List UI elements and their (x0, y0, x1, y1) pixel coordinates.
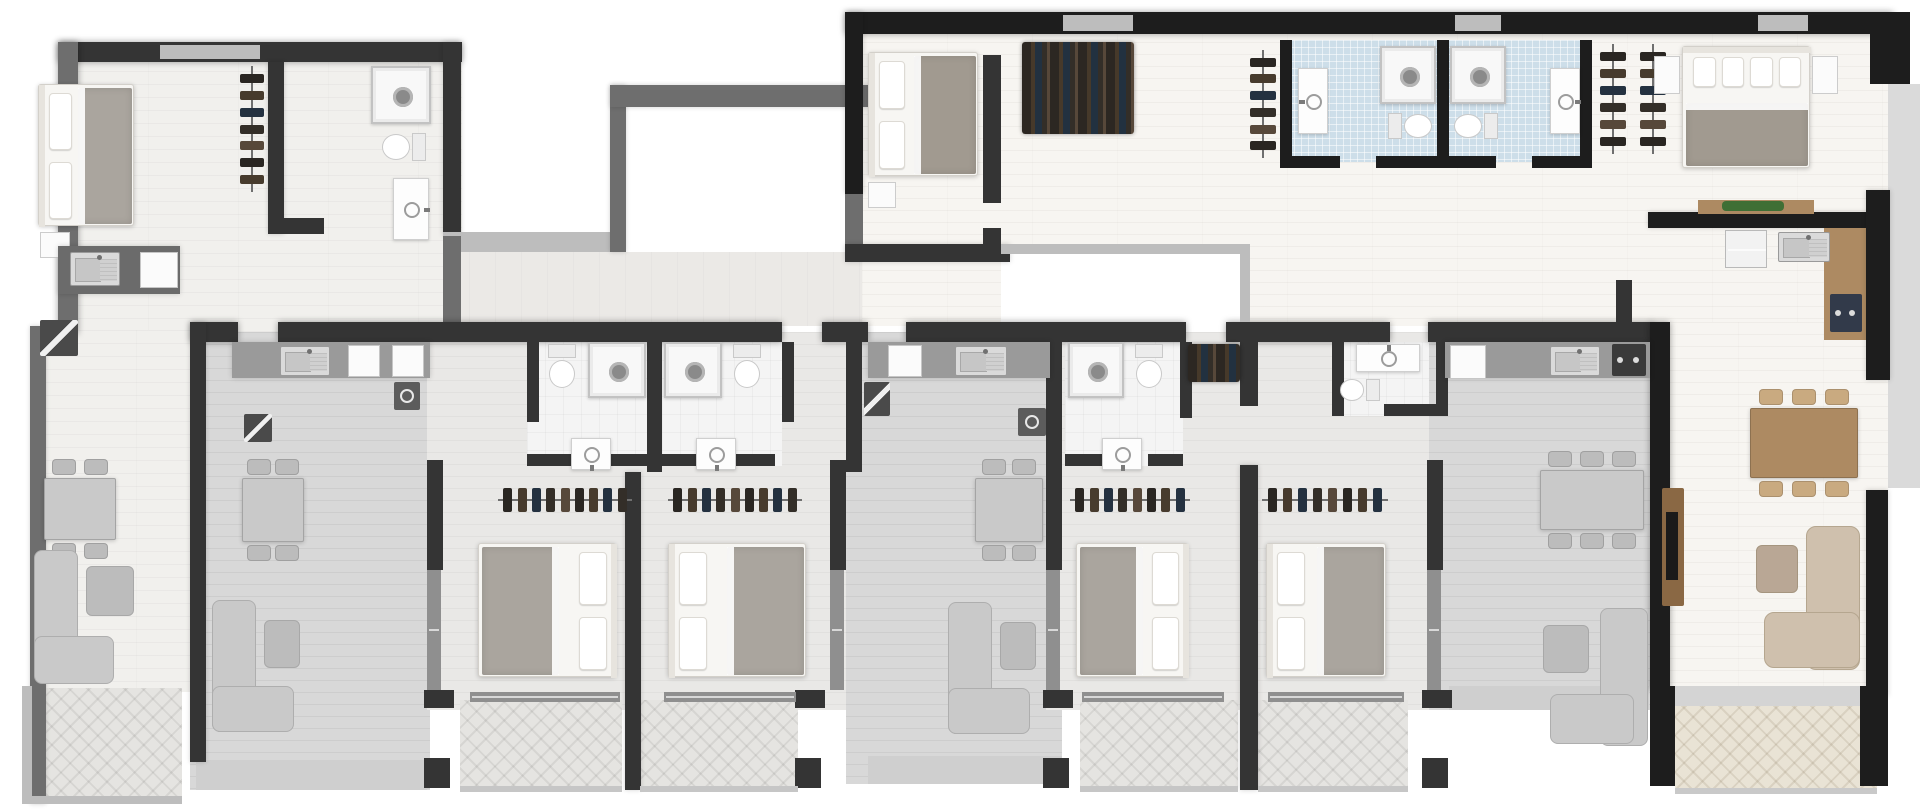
toilet-bowl (1136, 360, 1162, 388)
hanger-icon (518, 488, 527, 512)
wardrobe-bayC2 (1070, 486, 1190, 514)
floor-corridor (443, 252, 863, 326)
wall-unitE-corner-br (1860, 686, 1888, 786)
toilet-tank (1388, 113, 1402, 139)
vanity-bathD (1356, 344, 1420, 372)
wall-unitE-top (845, 12, 1893, 34)
table-unitE (1750, 408, 1858, 478)
fridge-unitE (1725, 230, 1767, 268)
pillow (1277, 617, 1305, 670)
toilet-unit1 (378, 130, 426, 164)
tap-icon (1387, 345, 1391, 351)
headboard (869, 53, 875, 177)
bed-bayC (668, 543, 806, 677)
wall-unit1-bath-right (443, 42, 461, 236)
toilet-bowl (549, 360, 575, 388)
toilet-bowl (1404, 114, 1432, 138)
chair (1825, 389, 1849, 405)
table-top (975, 478, 1043, 542)
wall-bathsE-right (1580, 40, 1592, 162)
wall-mid-seg2 (278, 322, 782, 342)
pillow (1722, 57, 1745, 87)
wall-sliderD-upper (1427, 460, 1443, 570)
shower-bathE2 (1450, 46, 1506, 104)
pillow (1779, 57, 1802, 87)
hanger-icon (240, 74, 264, 83)
floor-balconyB (460, 700, 622, 788)
chair (1612, 533, 1636, 549)
table-unitD (1540, 470, 1644, 530)
wall-bedBC-divider (625, 472, 641, 790)
wardrobe-unit1 (238, 66, 266, 192)
wall-unit1-divider (268, 62, 284, 234)
faucet-icon (1806, 235, 1811, 240)
fridge-unitB (244, 414, 272, 442)
hanger-icon (589, 488, 598, 512)
hanger-icon (759, 488, 768, 512)
hanger-icon (1313, 488, 1322, 512)
chair (982, 545, 1006, 561)
toilet-tank (548, 344, 575, 358)
hanger-icon (240, 158, 264, 167)
pillow (1152, 552, 1179, 605)
sink-basin-icon (1381, 351, 1397, 367)
pillow (679, 552, 707, 605)
tap-icon (1299, 100, 1305, 104)
sink-basin (75, 258, 101, 282)
floor-unit1-balcony (32, 688, 182, 800)
panel-line (1429, 629, 1439, 631)
wall-unitB-left (190, 322, 206, 762)
door-sliderC (830, 570, 844, 690)
cabinet-unitC (888, 345, 922, 377)
toilet-bathC2 (1132, 344, 1166, 392)
hanger-icon (1373, 488, 1382, 512)
toilet-bathE1 (1388, 110, 1436, 142)
wall-bathsE-left (1280, 40, 1292, 162)
cabinet-unitD (1450, 345, 1486, 379)
hanger-icon (1640, 137, 1666, 146)
tap-icon (1121, 465, 1125, 471)
blanket-fold (727, 547, 734, 675)
hanger-icon (1176, 488, 1185, 512)
sink-basin (960, 352, 987, 372)
blanket (78, 88, 132, 224)
pouf-unitE (1756, 545, 1798, 593)
blanket (727, 547, 804, 675)
toilet-tank (733, 344, 760, 358)
hanger-icon (532, 488, 541, 512)
sofa-unitE-chaise (1764, 612, 1860, 668)
hanger-icon (1283, 488, 1292, 512)
wall-bathC2-bottom2 (1148, 454, 1183, 466)
hanger-icon (1250, 58, 1276, 67)
blanket-fold (1136, 547, 1143, 675)
chair (275, 459, 299, 475)
ksink-unitE (1778, 232, 1830, 262)
hanger-icon (788, 488, 797, 512)
table-unit1 (44, 478, 116, 540)
shower-head-icon (393, 87, 413, 107)
toilet-bathD (1336, 376, 1380, 404)
tap-icon (590, 465, 594, 471)
pillow (49, 93, 72, 150)
wall-bathB-bottom1 (527, 454, 575, 466)
bed-unitE-2 (1682, 46, 1810, 168)
hanger-icon (575, 488, 584, 512)
toilet-tank (1366, 379, 1380, 401)
hanger-icon (1600, 69, 1626, 78)
bed-unitE-1 (868, 52, 978, 176)
wall-courtyard2-right (1240, 244, 1250, 322)
fridge-unitC (864, 382, 890, 416)
slider-balconyB (470, 692, 620, 702)
headboard (1267, 544, 1273, 678)
wall-courtyard2-sill (1001, 244, 1246, 254)
blanket-fold (78, 88, 85, 224)
post-sliderB (424, 758, 450, 788)
drain-board (310, 353, 327, 371)
floor-balconyC (640, 700, 798, 788)
hanger-icon (1600, 120, 1626, 129)
hanger-icon (1640, 103, 1666, 112)
chair (1612, 451, 1636, 467)
headboard (611, 544, 617, 678)
hanger-icon (1161, 488, 1170, 512)
rack-rail (1070, 499, 1190, 501)
table-top (1540, 470, 1644, 530)
floor-unitB-terrace (196, 760, 427, 790)
panel-line (1048, 629, 1058, 631)
ksink-unitC (955, 346, 1007, 376)
sink-basin-icon (584, 447, 600, 463)
hanger-icon (1118, 488, 1127, 512)
bed-unit1 (38, 84, 134, 226)
parapet-balconyC (640, 786, 798, 792)
hanger-icon (546, 488, 555, 512)
wall-unit1-stub (268, 218, 324, 234)
toilet-bathB (545, 344, 579, 392)
wall-bathsE-bottom3 (1532, 156, 1592, 168)
vanity-unit1 (393, 178, 429, 240)
cabinet-unitB-2 (392, 345, 424, 377)
wall-sliderC-corner (795, 690, 825, 708)
toilet-bathE2 (1450, 110, 1498, 142)
counter-unitE-bar (1648, 212, 1872, 228)
wardrobe-bayB (498, 486, 632, 514)
blanket (1080, 547, 1143, 675)
chair (52, 459, 76, 475)
blanket-fold (914, 56, 921, 174)
hanger-icon (1250, 125, 1276, 134)
sofa-unitC-chaise (948, 688, 1030, 734)
wall-unitD-kitchen-jog (1616, 280, 1632, 342)
hanger-icon (1133, 488, 1142, 512)
hanger-icon (1075, 488, 1084, 512)
wall-bedroomE1-divider-b (983, 228, 1001, 262)
wall-sliderC-upper (830, 460, 846, 570)
ottoman-unitC (1000, 622, 1036, 670)
stove-unitD (1612, 344, 1646, 376)
faucet-icon (307, 349, 312, 354)
stove-unitE (1830, 294, 1862, 332)
drain-board (100, 259, 117, 281)
bed-bayC2 (1076, 543, 1188, 677)
chair (1012, 545, 1036, 561)
wall-courtyard-horiz (610, 85, 872, 107)
wardrobe-rack-E2a (1598, 44, 1628, 154)
blanket (1317, 547, 1384, 675)
floor-balconyD (1258, 700, 1408, 788)
floor-unitC-terrace (868, 756, 1062, 784)
chair (84, 543, 108, 559)
shoe-rack-hall (1188, 344, 1240, 382)
hanger-icon (1600, 52, 1626, 61)
chair (1759, 389, 1783, 405)
shower-head-icon (685, 362, 705, 382)
blanket-fold (1686, 103, 1808, 110)
table-unitC (975, 478, 1043, 542)
blanket-fold (552, 547, 559, 675)
ottoman-unit1 (86, 566, 134, 616)
vanity-bathE2 (1550, 68, 1580, 134)
shower-head-icon (1470, 67, 1490, 87)
post-sliderD (1422, 758, 1448, 788)
knob-icon (1633, 357, 1639, 363)
hanger-icon (1147, 488, 1156, 512)
wardrobe-bayC (668, 486, 802, 514)
toilet-bowl (1340, 379, 1364, 400)
washer-unitB (394, 382, 420, 410)
pillow (1277, 552, 1305, 605)
wall-bathB-left (527, 342, 539, 422)
vanity-bathE1 (1298, 68, 1328, 134)
toilet-bowl (734, 360, 760, 388)
blanket (914, 56, 976, 174)
floor-plan (0, 0, 1920, 811)
chair (1580, 451, 1604, 467)
table-top (44, 478, 116, 540)
faucet-icon (97, 255, 102, 260)
wall-unitE-right-lower (1866, 490, 1888, 696)
sofa-unitD-chaise (1550, 694, 1634, 744)
hanger-icon (716, 488, 725, 512)
wall-bathsE-bottom2 (1376, 156, 1496, 168)
window-unit1-top (160, 45, 260, 59)
hanger-icon (561, 488, 570, 512)
headboard (1683, 47, 1811, 53)
panel-line (472, 696, 618, 698)
wall-bathB-bottom2 (610, 454, 661, 466)
hanger-icon (702, 488, 711, 512)
hanger-icon (1328, 488, 1337, 512)
vanity-bathC2 (1102, 438, 1142, 470)
nightstand-unitE-2a (1654, 56, 1680, 94)
shower-head-icon (1088, 362, 1108, 382)
tap-icon (715, 465, 719, 471)
sink-basin-icon (1306, 94, 1322, 110)
hanger-icon (1250, 74, 1276, 83)
parapet-balconyB (460, 786, 622, 792)
knob-icon (1849, 310, 1855, 316)
cutting-board (1722, 201, 1784, 211)
shower-unit1 (371, 66, 431, 124)
wardrobe-unitE-dressing (1022, 42, 1134, 134)
wardrobe-bayD (1262, 486, 1388, 514)
bed-bayD (1266, 543, 1386, 677)
window-unitE-3 (1758, 15, 1808, 31)
hanger-icon (503, 488, 512, 512)
window-unitE-1 (1063, 15, 1133, 31)
shower-head-icon (1400, 67, 1420, 87)
drum-icon (1025, 415, 1039, 429)
wall-unitE-corner-tr (1870, 12, 1910, 84)
chair (1792, 481, 1816, 497)
outside-band-right (1888, 84, 1920, 488)
hanger-icon (240, 91, 264, 100)
panel-line (1084, 696, 1222, 698)
post-sliderC (795, 758, 821, 788)
tap-icon (424, 208, 430, 212)
sink-basin (1555, 352, 1581, 372)
headboard (669, 544, 675, 678)
chair (1580, 533, 1604, 549)
wall-unitE-kitchen-right (1866, 190, 1890, 380)
fridge-unit1 (40, 320, 78, 356)
wall-bathBC-divider (647, 326, 662, 472)
rack-rail (1262, 499, 1388, 501)
slider-balconyC (664, 692, 796, 702)
chair (1548, 533, 1572, 549)
chair (1759, 481, 1783, 497)
wall-sliderB-corner (424, 690, 454, 708)
chair (84, 459, 108, 475)
blanket (1686, 103, 1808, 166)
chair (247, 545, 271, 561)
slider-balconyD (1268, 692, 1404, 702)
wall-corridor-left (443, 236, 461, 326)
sink-basin (285, 352, 311, 372)
toilet-tank (1135, 344, 1162, 358)
floor-balconyC2 (1080, 700, 1238, 788)
toilet-tank (1484, 113, 1498, 139)
vanity-bathC (696, 438, 736, 470)
table-top (242, 478, 304, 542)
parapet-balconyC2 (1080, 786, 1238, 792)
shower-bathB (588, 342, 646, 398)
table-top (1750, 408, 1858, 478)
door-sliderD (1427, 570, 1441, 690)
wall-bathD-bottom1 (1332, 404, 1344, 416)
pillow (679, 617, 707, 670)
sink-basin-icon (1115, 447, 1131, 463)
drain-board (1580, 353, 1597, 371)
floor-bathsE-blue (1287, 40, 1585, 162)
hanger-icon (1250, 108, 1276, 117)
chair (1825, 481, 1849, 497)
hanger-icon (745, 488, 754, 512)
headboard (39, 85, 45, 227)
pillow (49, 162, 72, 219)
hanger-icon (1600, 103, 1626, 112)
pillow (579, 552, 607, 605)
hanger-icon (1600, 137, 1626, 146)
hanger-icon (240, 141, 264, 150)
pillow (1750, 57, 1773, 87)
hanger-icon (773, 488, 782, 512)
sofa-unit1-chaise (34, 636, 114, 684)
hanger-icon (1640, 120, 1666, 129)
hanger-icon (603, 488, 612, 512)
hanger-icon (1104, 488, 1113, 512)
nightstand-unitE-2b (1812, 56, 1838, 94)
drum-icon (400, 389, 414, 403)
ottoman-unitB (264, 620, 300, 668)
chair (1548, 451, 1572, 467)
panel-line (1270, 696, 1402, 698)
wardrobe-rack-E1 (1248, 50, 1278, 158)
panel-line (832, 629, 842, 631)
slider-balconyC2 (1082, 692, 1224, 702)
panel-line (666, 696, 794, 698)
drain-board (1809, 239, 1827, 257)
hanger-icon (1298, 488, 1307, 512)
wall-bathsE-divider (1437, 40, 1449, 162)
hanger-icon (240, 175, 264, 184)
headboard (1183, 544, 1189, 678)
parapet-balconyD (1258, 786, 1408, 792)
faucet-icon (983, 349, 988, 354)
shower-bathC (664, 342, 722, 398)
chair (1792, 389, 1816, 405)
toilet-bowl (1454, 114, 1482, 138)
wall-bedroomE1-divider-a (983, 55, 1001, 203)
wall-unit1-top (58, 42, 462, 62)
tap-icon (1575, 100, 1581, 104)
hanger-icon (1358, 488, 1367, 512)
toilet-bathC (730, 344, 764, 392)
wall-sliderB-upper (427, 460, 443, 570)
wall-unitE-left (845, 12, 863, 194)
chair (982, 459, 1006, 475)
pillow (879, 121, 905, 169)
sink-basin-icon (1558, 94, 1574, 110)
wall-courtyard-vert (610, 85, 626, 252)
hanger-icon (1268, 488, 1277, 512)
floor-balconyE (1675, 706, 1877, 792)
shower-head-icon (609, 362, 629, 382)
chair (247, 459, 271, 475)
sink-basin-icon (709, 447, 725, 463)
cabinet-unitB-1 (348, 345, 380, 377)
wall-bayC2D-divider-lower (1240, 465, 1258, 790)
hanger-icon (240, 108, 264, 117)
ksink-unit1 (70, 252, 120, 286)
toilet-bowl (382, 134, 410, 160)
chair (1012, 459, 1036, 475)
sink-basin-icon (404, 202, 420, 218)
sofa-unitB-chaise (212, 686, 294, 732)
toilet-tank (412, 133, 426, 160)
wall-sliderC2-corner (1043, 690, 1073, 708)
hanger-icon (1090, 488, 1099, 512)
door-sliderB (427, 570, 441, 690)
ksink-unitB (280, 346, 330, 376)
faucet-icon (1577, 349, 1582, 354)
window-unitE-2 (1455, 15, 1501, 31)
wall-unitC-left-upper (846, 322, 862, 472)
courtyard-2 (1001, 244, 1246, 332)
